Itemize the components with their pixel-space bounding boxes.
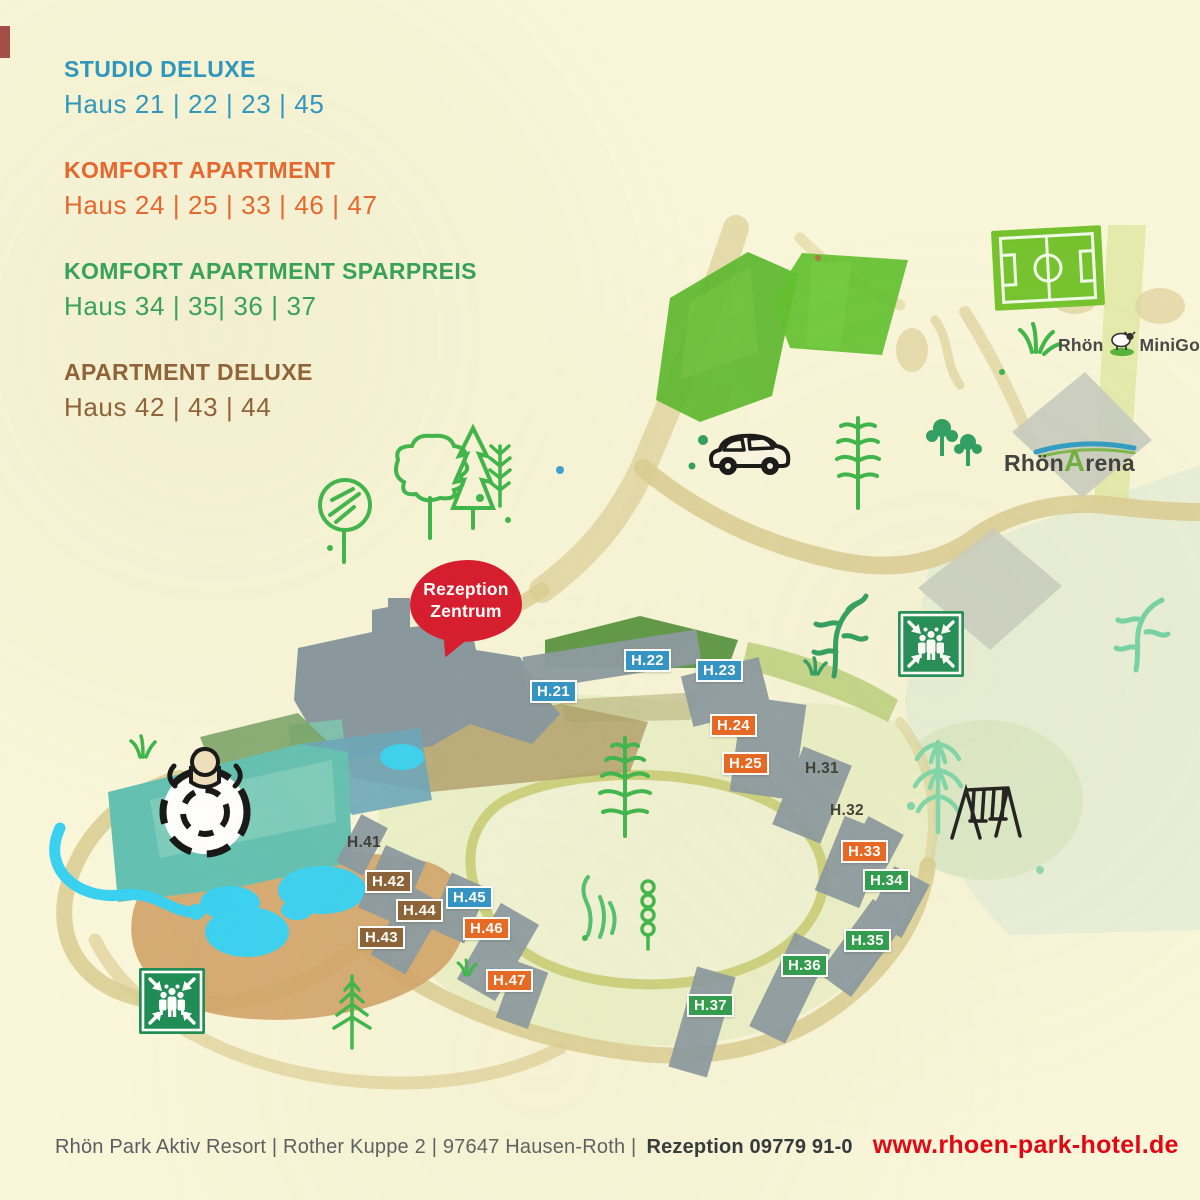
house-badge-h47: H.47 [486, 969, 533, 992]
scribble-tree-icon [320, 480, 370, 562]
house-badge-h22: H.22 [624, 649, 671, 672]
arena-text-rhoen: Rhön [1004, 450, 1064, 477]
ladder-pine-icon [837, 418, 879, 508]
arena-logo-text: RhönArena [1004, 446, 1135, 479]
footer: Rhön Park Aktiv Resort | Rother Kuppe 2 … [55, 1131, 1179, 1160]
assembly-point-sign [139, 968, 205, 1034]
house-badge-h45: H.45 [446, 886, 493, 909]
house-label-h41: H.41 [347, 834, 381, 852]
house-badge-h44: H.44 [396, 899, 443, 922]
umbrella-tree-icon [926, 419, 982, 466]
fern-icon [490, 446, 510, 506]
legend-group-apartment-deluxe: APARTMENT DELUXE Haus 42 | 43 | 44 [64, 359, 477, 423]
legend-title: STUDIO DELUXE [64, 56, 477, 83]
legend-houses: Haus 24 | 25 | 33 | 46 | 47 [64, 190, 477, 221]
legend-title: KOMFORT APARTMENT [64, 157, 477, 184]
legend-houses: Haus 34 | 35| 36 | 37 [64, 291, 477, 322]
house-badge-h42: H.42 [365, 870, 412, 893]
minigolf-logo: Rhön MiniGolf [1058, 330, 1200, 356]
arena-text-rena: rena [1085, 450, 1135, 477]
reception-line2: Zentrum [430, 601, 501, 623]
coral-plant-icon [805, 596, 866, 676]
house-badge-h24: H.24 [710, 714, 757, 737]
arena-logo: RhönArena [998, 436, 1138, 482]
house-badge-h21: H.21 [530, 680, 577, 703]
house-badge-h37: H.37 [687, 994, 734, 1017]
house-label-h31: H.31 [805, 760, 839, 778]
house-badge-h43: H.43 [358, 926, 405, 949]
house-badge-h34: H.34 [863, 869, 910, 892]
legend-title: APARTMENT DELUXE [64, 359, 477, 386]
car-icon [711, 436, 788, 475]
assembly-point-sign [898, 611, 964, 677]
grass-icon [131, 736, 155, 757]
legend-houses: Haus 21 | 22 | 23 | 45 [64, 89, 477, 120]
house-badge-h33: H.33 [841, 840, 888, 863]
arena-text-a: A [1064, 446, 1085, 479]
football-pitch [991, 225, 1105, 311]
page-fold-mark [0, 26, 10, 58]
house-badge-h23: H.23 [696, 659, 743, 682]
grass-icon [1020, 324, 1060, 354]
footer-address: Rhön Park Aktiv Resort | Rother Kuppe 2 … [55, 1136, 636, 1159]
reception-line1: Rezeption [423, 579, 508, 601]
footer-phone: Rezeption 09779 91-0 [646, 1136, 852, 1159]
house-badge-h46: H.46 [463, 917, 510, 940]
footer-website-link[interactable]: www.rhoen-park-hotel.de [873, 1131, 1179, 1160]
legend-group-komfort-sparpreis: KOMFORT APARTMENT SPARPREIS Haus 34 | 35… [64, 258, 477, 322]
minigolf-logo-text-left: Rhön [1058, 335, 1104, 356]
legend-title: KOMFORT APARTMENT SPARPREIS [64, 258, 477, 285]
house-badge-h36: H.36 [781, 954, 828, 977]
legend: STUDIO DELUXE Haus 21 | 22 | 23 | 45 KOM… [64, 56, 477, 460]
legend-group-komfort-apartment: KOMFORT APARTMENT Haus 24 | 25 | 33 | 46… [64, 157, 477, 221]
house-badge-h25: H.25 [722, 752, 769, 775]
reception-bubble: Rezeption Zentrum [410, 560, 522, 642]
legend-group-studio-deluxe: STUDIO DELUXE Haus 21 | 22 | 23 | 45 [64, 56, 477, 120]
house-badge-h35: H.35 [844, 929, 891, 952]
sheep-icon [1107, 330, 1137, 356]
legend-houses: Haus 42 | 43 | 44 [64, 392, 477, 423]
minigolf-logo-text-right: MiniGolf [1140, 335, 1200, 356]
house-label-h32: H.32 [830, 802, 864, 820]
